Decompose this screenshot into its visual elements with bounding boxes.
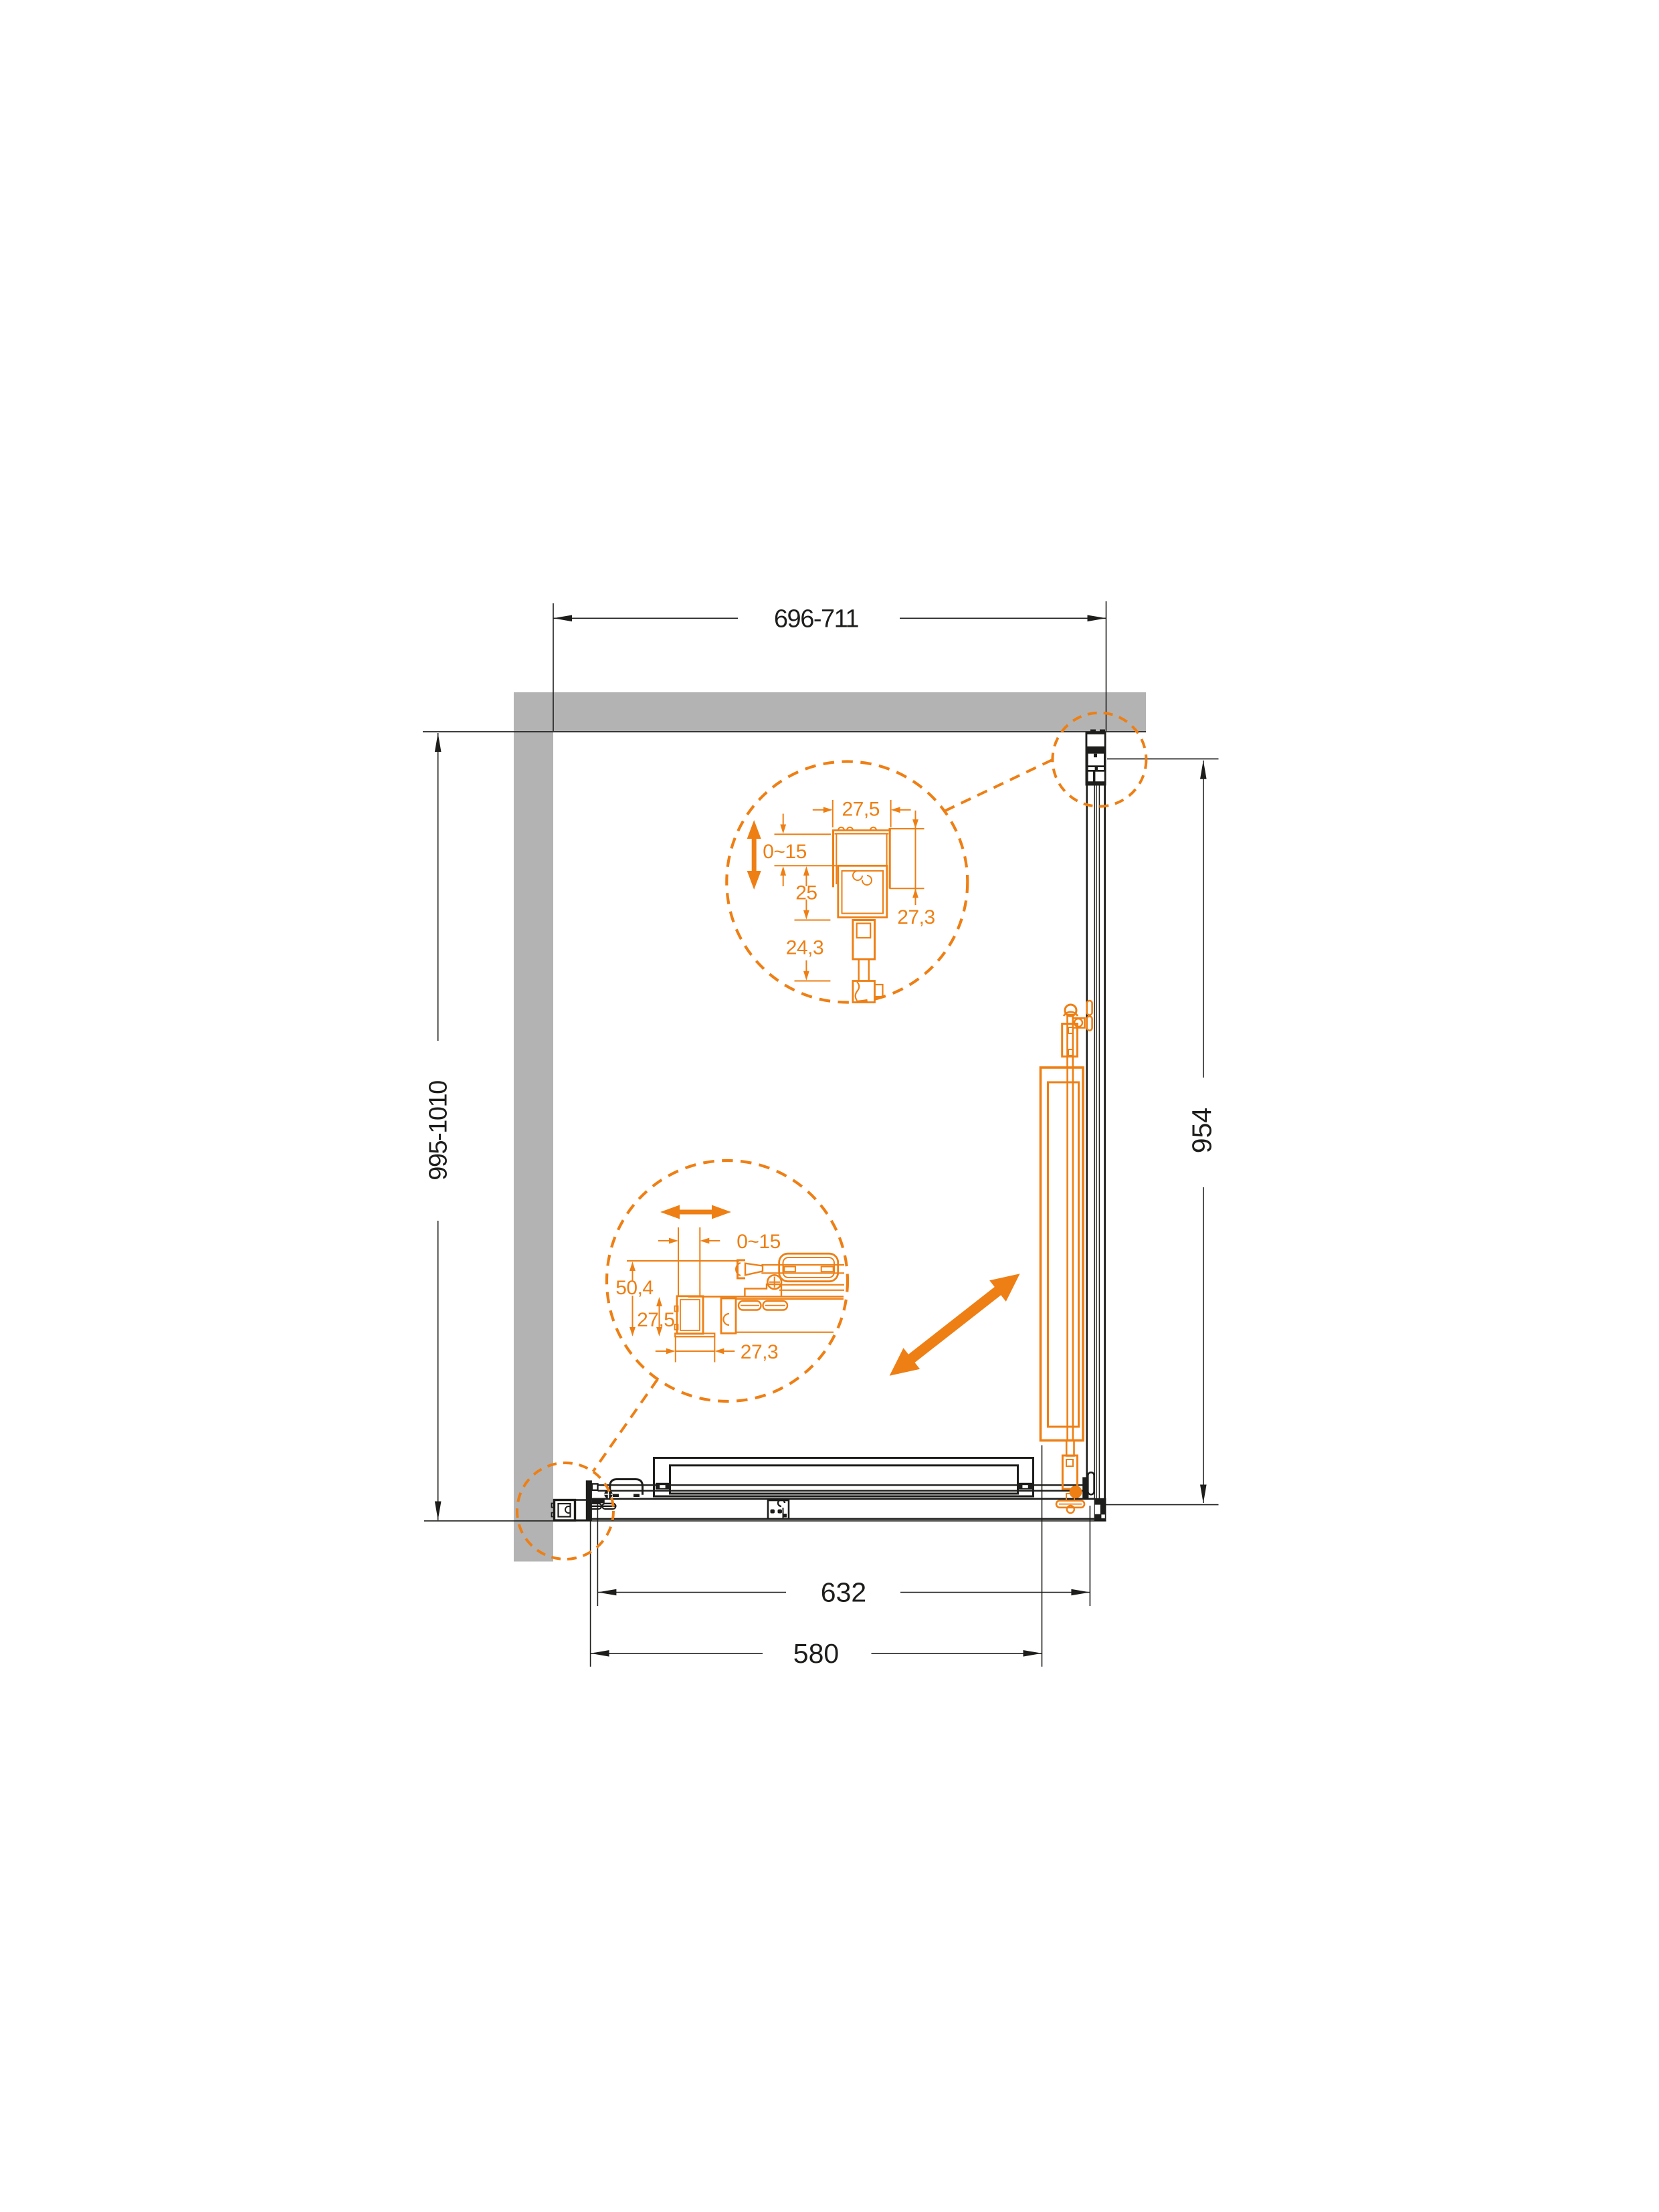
svg-text:24,3: 24,3 bbox=[786, 937, 823, 959]
svg-text:696-711: 696-711 bbox=[774, 605, 859, 633]
svg-text:0~15: 0~15 bbox=[737, 1231, 781, 1253]
svg-text:954: 954 bbox=[1187, 1108, 1217, 1153]
svg-text:27,5: 27,5 bbox=[637, 1309, 674, 1331]
svg-text:580: 580 bbox=[793, 1638, 839, 1669]
svg-text:27,5: 27,5 bbox=[842, 799, 880, 821]
svg-text:995-1010: 995-1010 bbox=[425, 1081, 453, 1181]
svg-text:0~15: 0~15 bbox=[763, 841, 807, 863]
svg-text:632: 632 bbox=[821, 1577, 866, 1608]
svg-text:27,3: 27,3 bbox=[741, 1341, 778, 1363]
svg-text:50,4: 50,4 bbox=[615, 1277, 653, 1299]
svg-text:27,3: 27,3 bbox=[897, 906, 935, 928]
svg-text:25: 25 bbox=[795, 882, 817, 904]
